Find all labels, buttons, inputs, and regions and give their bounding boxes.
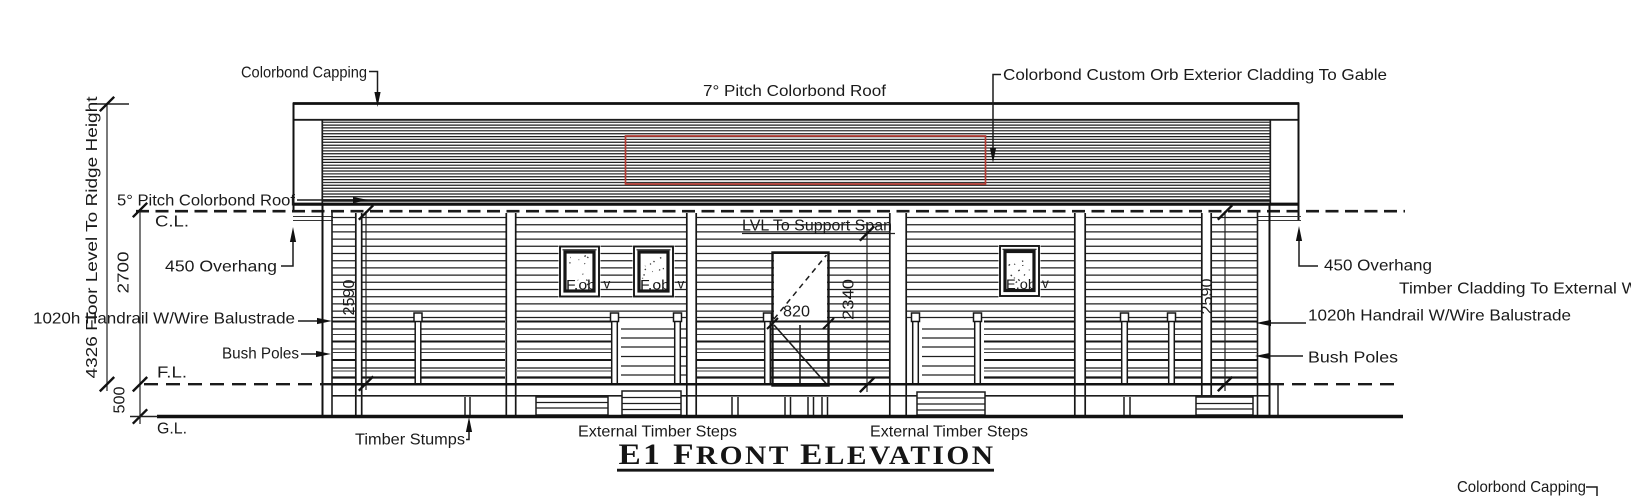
svg-text:C.L.: C.L. (155, 214, 189, 231)
svg-text:Bush Poles: Bush Poles (1308, 350, 1398, 367)
svg-text:500: 500 (112, 386, 129, 413)
svg-text:2590: 2590 (1199, 278, 1216, 314)
svg-text:Timber Cladding To External Wa: Timber Cladding To External Wa (1399, 281, 1631, 298)
svg-text:E.ob: E.ob (1006, 277, 1036, 292)
svg-text:2590: 2590 (341, 279, 358, 315)
svg-text:F.ob: F.ob (640, 278, 670, 293)
svg-text:Timber Stumps: Timber Stumps (355, 432, 465, 449)
svg-text:Colorbond Capping: Colorbond Capping (241, 65, 367, 82)
svg-text:2340: 2340 (841, 279, 858, 320)
svg-text:F.L.: F.L. (157, 365, 187, 382)
svg-text:1020h Handrail W/Wire Balustra: 1020h Handrail W/Wire Balustrade (1308, 308, 1571, 325)
svg-text:v: v (604, 277, 611, 292)
svg-text:450 Overhang: 450 Overhang (1324, 258, 1432, 275)
svg-text:v: v (678, 277, 685, 292)
svg-text:5° Pitch Colorbond Roof: 5° Pitch Colorbond Roof (117, 193, 296, 210)
svg-text:Bush Poles: Bush Poles (222, 346, 299, 363)
svg-text:Colorbond Custom Orb Exterior: Colorbond Custom Orb Exterior Cladding T… (1003, 67, 1387, 84)
svg-text:1020h Handrail W/Wire Balustra: 1020h Handrail W/Wire Balustrade (33, 311, 295, 328)
svg-text:v: v (1042, 276, 1049, 291)
svg-text:External Timber Steps: External Timber Steps (870, 424, 1028, 441)
svg-text:7° Pitch Colorbond Roof: 7° Pitch Colorbond Roof (703, 83, 887, 100)
svg-text:2700: 2700 (116, 251, 133, 293)
svg-text:820: 820 (783, 304, 810, 321)
svg-text:LVL To Support Span: LVL To Support Span (742, 218, 892, 235)
svg-text:450 Overhang: 450 Overhang (165, 259, 277, 276)
svg-text:F.ob: F.ob (566, 278, 596, 293)
svg-text:4326 Floor Level To Ridge Heig: 4326 Floor Level To Ridge Height (84, 96, 101, 379)
svg-text:Colorbond Capping: Colorbond Capping (1457, 479, 1586, 496)
svg-text:E1 FRONT ELEVATION: E1 FRONT ELEVATION (619, 438, 996, 471)
svg-text:G.L.: G.L. (157, 421, 187, 438)
